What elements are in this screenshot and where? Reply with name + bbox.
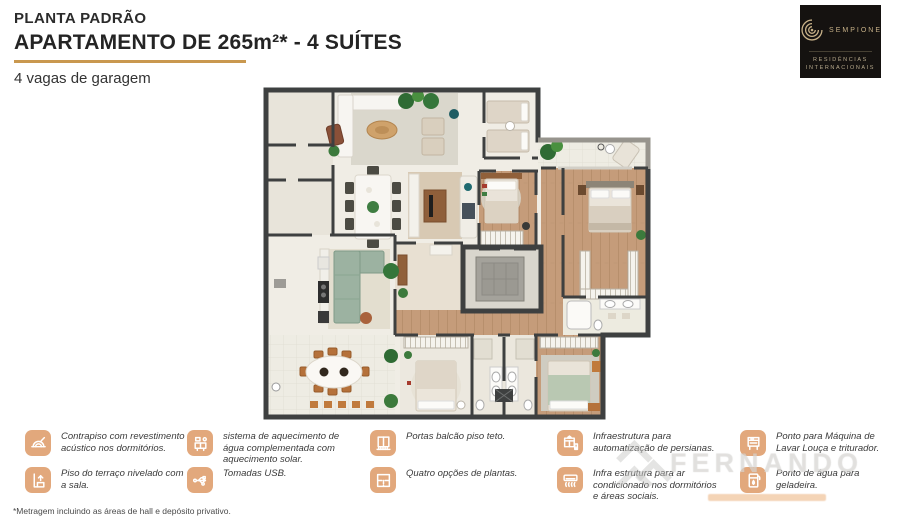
legend-item: Piso do terraço nivelado com a sala. xyxy=(25,467,191,504)
solar-water-heating-icon xyxy=(187,430,213,456)
legend-column-1: Contrapiso com revestimento acústico nos… xyxy=(25,430,191,504)
legend-item-text: Tomadas USB. xyxy=(223,467,287,480)
floor-plan-options-icon xyxy=(370,467,396,493)
legend-column-5: Ponto para Máquina de Lavar Louça e trit… xyxy=(740,430,900,504)
legend-item: Infra estrutura para ar condicionado nos… xyxy=(557,467,723,504)
plan-type-label: PLANTA PADRÃO xyxy=(14,10,534,27)
terrace-level-icon xyxy=(25,467,51,493)
balcony-doors-icon xyxy=(370,430,396,456)
footnote: *Metragem incluindo as áreas de hall e d… xyxy=(13,506,231,516)
legend-column-3: Portas balcão piso teto. Quatro opções d… xyxy=(370,430,517,504)
acoustic-floor-icon xyxy=(25,430,51,456)
legend-column-4: Infraestrutura para automatização de per… xyxy=(557,430,723,504)
legend-item-text: Infra estrutura para ar condicionado nos… xyxy=(593,467,723,503)
brand-logo: SEMPIONE RESIDÊNCIAS INTERNACIONAIS xyxy=(800,5,881,78)
bedroom-bottom-right xyxy=(540,337,601,411)
page-title: APARTAMENTO DE 265m²* - 4 SUÍTES xyxy=(14,31,534,55)
elevator-core xyxy=(463,247,541,311)
legend-item: sistema de aquecimento de água complemen… xyxy=(187,430,353,467)
legend-item: Ponto de água para geladeira. xyxy=(740,467,900,504)
logo-divider xyxy=(809,51,872,52)
brand-tagline: RESIDÊNCIAS INTERNACIONAIS xyxy=(806,56,875,73)
legend-column-2: sistema de aquecimento de água complemen… xyxy=(187,430,353,504)
service-area-floor xyxy=(266,90,333,235)
legend-item: Ponto para Máquina de Lavar Louça e trit… xyxy=(740,430,900,467)
legend-item-text: Piso do terraço nivelado com a sala. xyxy=(61,467,191,491)
air-conditioning-icon xyxy=(557,467,583,493)
legend-item: Tomadas USB. xyxy=(187,467,353,504)
legend-item-text: sistema de aquecimento de água complemen… xyxy=(223,430,353,466)
title-underline xyxy=(14,60,246,63)
floorplan-image xyxy=(258,85,658,430)
legend-item: Infraestrutura para automatização de per… xyxy=(557,430,723,467)
legend-item: Contrapiso com revestimento acústico nos… xyxy=(25,430,191,467)
legend-item-text: Portas balcão piso teto. xyxy=(406,430,505,443)
floorplan-flyer: PLANTA PADRÃO APARTAMENTO DE 265m²* - 4 … xyxy=(0,0,900,525)
tagline-line1: RESIDÊNCIAS xyxy=(813,57,868,63)
header: PLANTA PADRÃO APARTAMENTO DE 265m²* - 4 … xyxy=(14,10,534,87)
legend-item-text: Ponto para Máquina de Lavar Louça e trit… xyxy=(776,430,900,454)
legend-item: Quatro opções de plantas. xyxy=(370,467,517,504)
legend-item-text: Contrapiso com revestimento acústico nos… xyxy=(61,430,191,454)
usb-outlet-icon xyxy=(187,467,213,493)
fridge-water-icon xyxy=(740,467,766,493)
legend-item: Portas balcão piso teto. xyxy=(370,430,517,467)
legend-item-text: Infraestrutura para automatização de per… xyxy=(593,430,723,454)
legend-item-text: Ponto de água para geladeira. xyxy=(776,467,900,491)
brand-name: SEMPIONE xyxy=(829,27,882,34)
blinds-automation-icon xyxy=(557,430,583,456)
spiral-logo-icon xyxy=(799,17,825,43)
dishwasher-icon xyxy=(740,430,766,456)
tagline-line2: INTERNACIONAIS xyxy=(806,65,875,71)
legend-item-text: Quatro opções de plantas. xyxy=(406,467,517,480)
